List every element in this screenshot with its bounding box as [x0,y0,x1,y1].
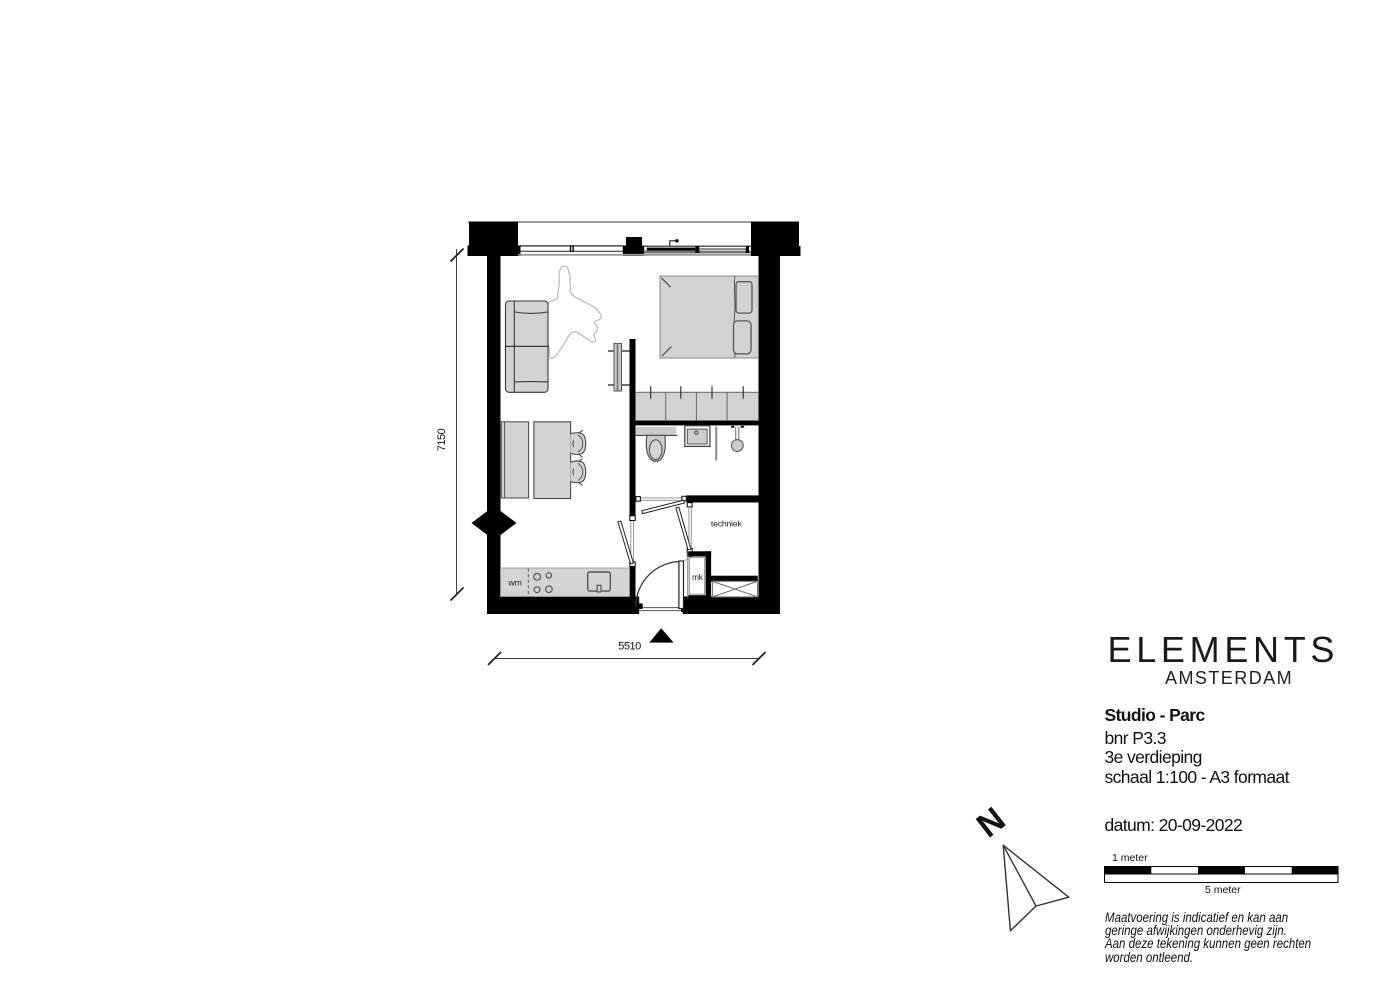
svg-text:7150: 7150 [436,428,448,451]
svg-text:mk: mk [692,572,704,582]
svg-text:5510: 5510 [618,641,641,653]
svg-text:wm: wm [508,578,522,588]
svg-text:N: N [970,800,1013,845]
svg-text:techniek: techniek [711,519,743,529]
